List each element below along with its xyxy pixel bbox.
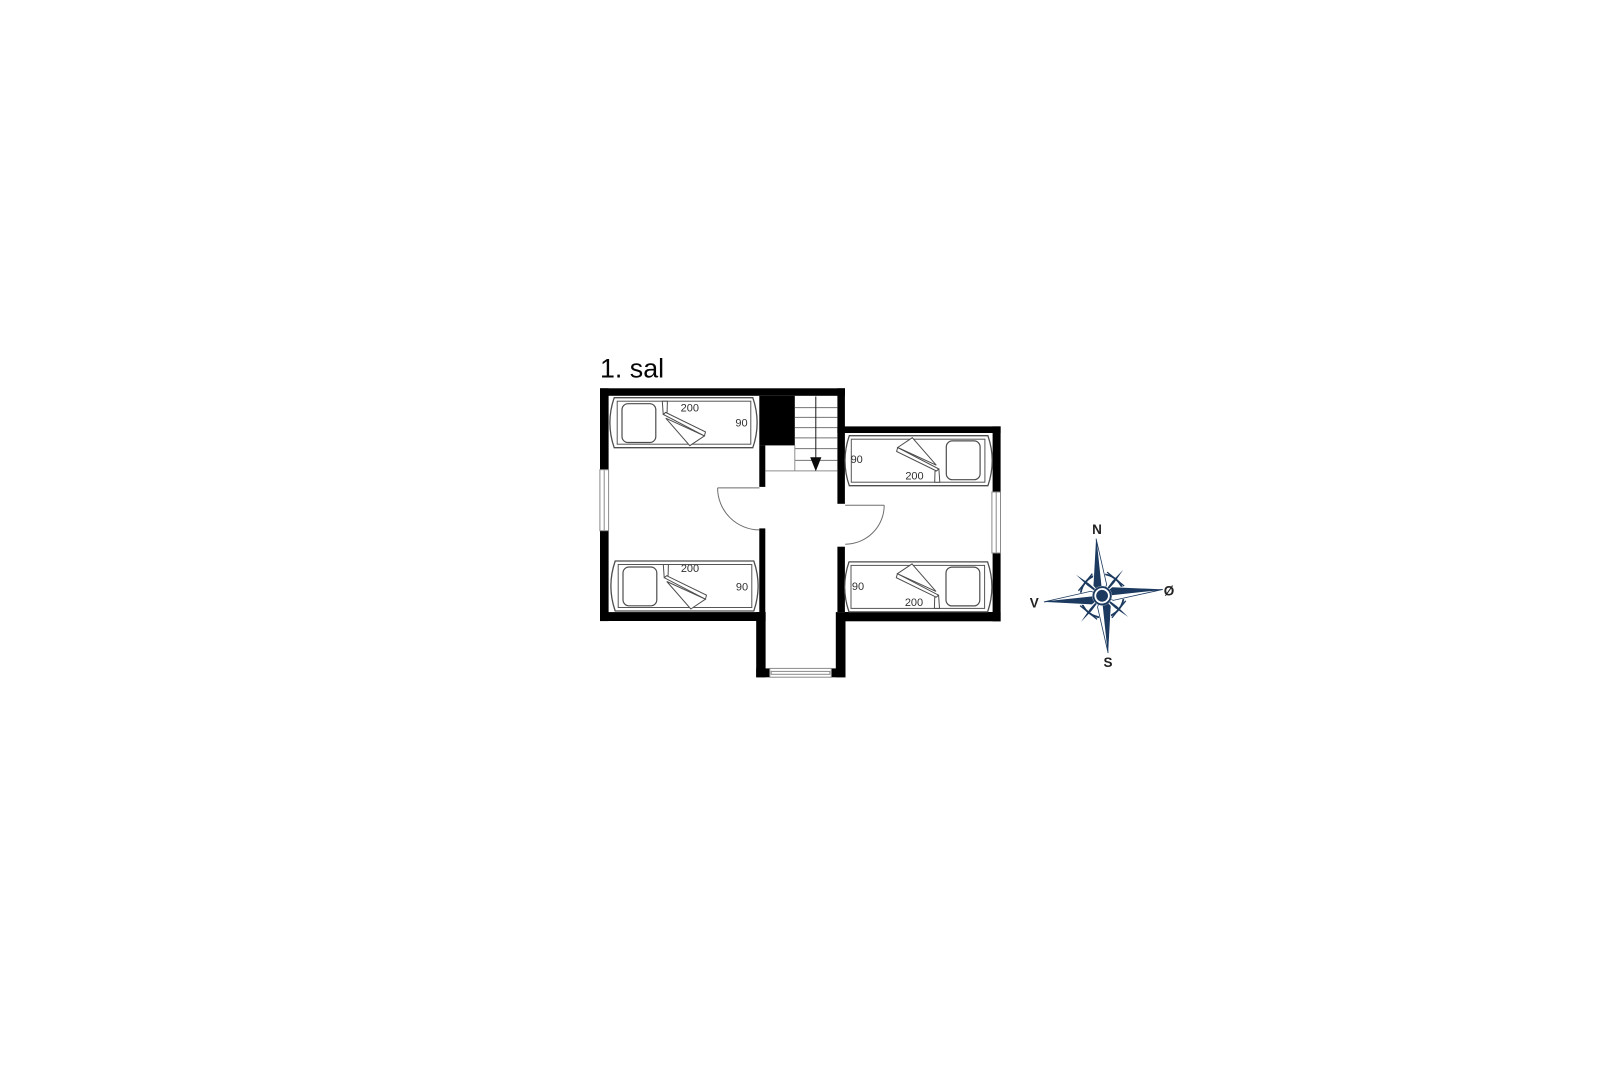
svg-text:90: 90 <box>735 418 747 430</box>
svg-text:200: 200 <box>681 563 699 575</box>
svg-text:90: 90 <box>851 454 863 466</box>
svg-text:S: S <box>1103 655 1112 670</box>
svg-text:200: 200 <box>905 597 923 609</box>
svg-text:90: 90 <box>852 581 864 593</box>
svg-text:90: 90 <box>736 581 748 593</box>
svg-text:1. sal: 1. sal <box>600 353 664 383</box>
svg-text:200: 200 <box>905 470 923 482</box>
svg-text:V: V <box>1030 596 1039 611</box>
svg-text:200: 200 <box>681 402 699 414</box>
svg-text:N: N <box>1092 522 1102 537</box>
svg-text:Ø: Ø <box>1164 583 1175 598</box>
